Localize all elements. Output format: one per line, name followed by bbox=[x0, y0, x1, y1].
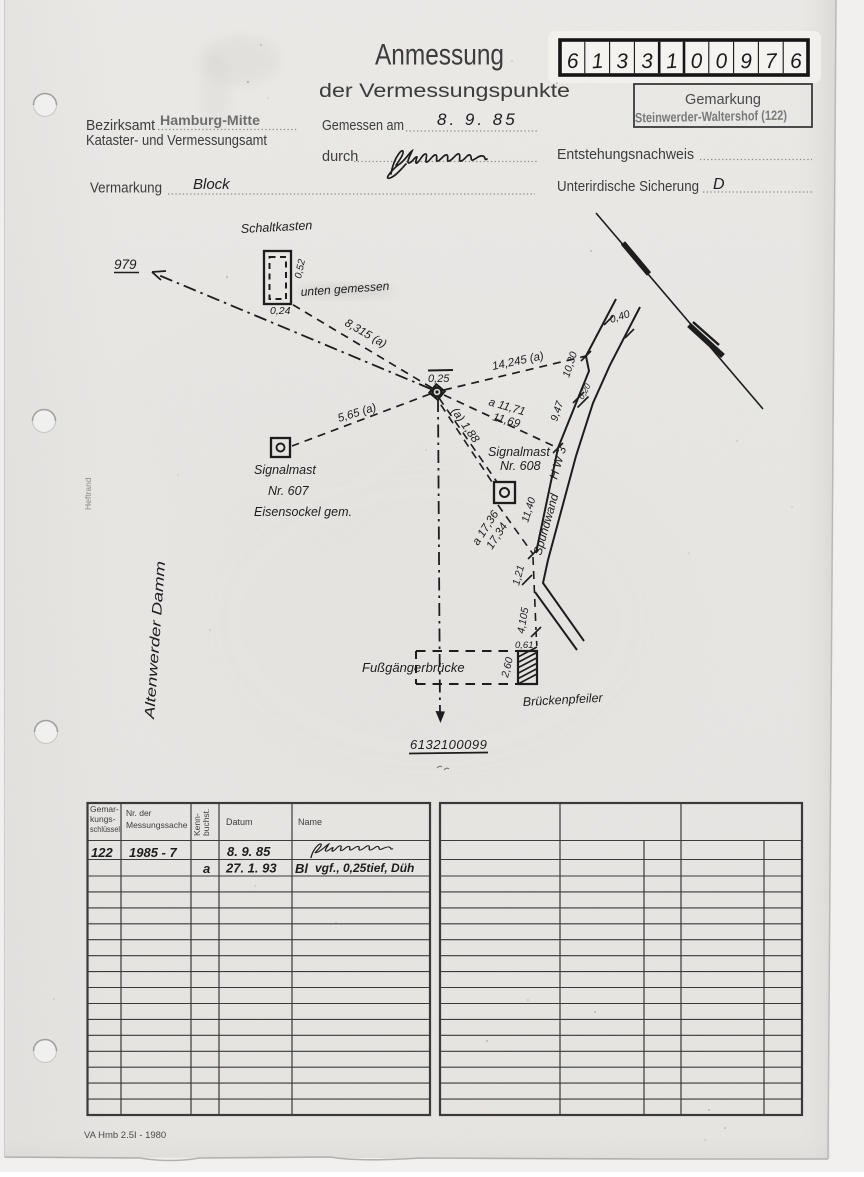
svg-text:979: 979 bbox=[114, 257, 137, 272]
svg-text:buchst.: buchst. bbox=[201, 809, 211, 836]
svg-text:0,25: 0,25 bbox=[428, 373, 450, 385]
svg-text:kungs-: kungs- bbox=[90, 814, 116, 824]
svg-text:Fußgängerbrücke: Fußgängerbrücke bbox=[362, 660, 465, 675]
svg-text:1: 1 bbox=[591, 50, 604, 74]
svg-text:Gemar-: Gemar- bbox=[90, 804, 119, 814]
svg-text:Bl: Bl bbox=[295, 861, 308, 876]
svg-text:Messungssache: Messungssache bbox=[126, 820, 188, 830]
svg-text:Signalmast: Signalmast bbox=[254, 463, 316, 477]
svg-text:Heftrand: Heftrand bbox=[83, 477, 93, 510]
svg-text:3: 3 bbox=[641, 50, 654, 74]
svg-text:der Vermessungspunkte: der Vermessungspunkte bbox=[319, 81, 570, 102]
svg-text:a: a bbox=[203, 861, 210, 876]
svg-text:1985 - 7: 1985 - 7 bbox=[129, 845, 177, 860]
svg-text:VA Hmb 2.5I - 1980: VA Hmb 2.5I - 1980 bbox=[84, 1130, 166, 1141]
svg-text:122: 122 bbox=[91, 845, 113, 860]
svg-text:3: 3 bbox=[616, 50, 629, 73]
svg-text:9: 9 bbox=[740, 50, 753, 73]
svg-text:Signalmast: Signalmast bbox=[488, 445, 550, 459]
svg-text:Nr. 607: Nr. 607 bbox=[268, 484, 310, 498]
svg-text:Hamburg-Mitte: Hamburg-Mitte bbox=[160, 112, 260, 128]
svg-text:Gemessen am: Gemessen am bbox=[322, 118, 404, 134]
svg-text:Unterirdische Sicherung: Unterirdische Sicherung bbox=[557, 179, 699, 195]
svg-text:Entstehungsnachweis: Entstehungsnachweis bbox=[557, 147, 694, 163]
svg-text:durch: durch bbox=[322, 149, 358, 165]
svg-text:vgf., 0,25tief, Düh: vgf., 0,25tief, Düh bbox=[315, 861, 414, 875]
svg-text:Gemarkung: Gemarkung bbox=[685, 91, 761, 108]
svg-text:8. 9. 85: 8. 9. 85 bbox=[437, 110, 518, 129]
svg-text:Nr. 608: Nr. 608 bbox=[500, 459, 541, 473]
svg-text:Block: Block bbox=[193, 176, 231, 193]
svg-text:0: 0 bbox=[715, 50, 728, 74]
svg-text:Nr. der: Nr. der bbox=[126, 808, 152, 818]
svg-text:Bezirksamt: Bezirksamt bbox=[86, 118, 155, 134]
svg-text:6132100099: 6132100099 bbox=[410, 737, 487, 752]
svg-text:Anmessung: Anmessung bbox=[375, 39, 504, 72]
svg-text:27. 1. 93: 27. 1. 93 bbox=[225, 861, 277, 876]
svg-text:D: D bbox=[713, 176, 725, 193]
svg-text:Name: Name bbox=[298, 817, 322, 827]
svg-text:6: 6 bbox=[566, 50, 579, 74]
svg-text:Steinwerder-Waltershof (122): Steinwerder-Waltershof (122) bbox=[635, 108, 787, 126]
svg-text:Eisensockel gem.: Eisensockel gem. bbox=[254, 505, 352, 519]
svg-text:0: 0 bbox=[690, 50, 703, 73]
svg-text:6: 6 bbox=[789, 50, 802, 74]
svg-text:0,61: 0,61 bbox=[515, 640, 534, 651]
svg-text:Vermarkung: Vermarkung bbox=[90, 181, 162, 197]
svg-text:1: 1 bbox=[665, 50, 678, 74]
svg-text:8. 9. 85: 8. 9. 85 bbox=[227, 844, 271, 859]
svg-text:Datum: Datum bbox=[226, 817, 253, 827]
svg-text:Kataster- und Vermessungsamt: Kataster- und Vermessungsamt bbox=[86, 133, 267, 149]
svg-text:0,24: 0,24 bbox=[270, 305, 291, 317]
svg-text:schlüssel: schlüssel bbox=[90, 824, 120, 834]
